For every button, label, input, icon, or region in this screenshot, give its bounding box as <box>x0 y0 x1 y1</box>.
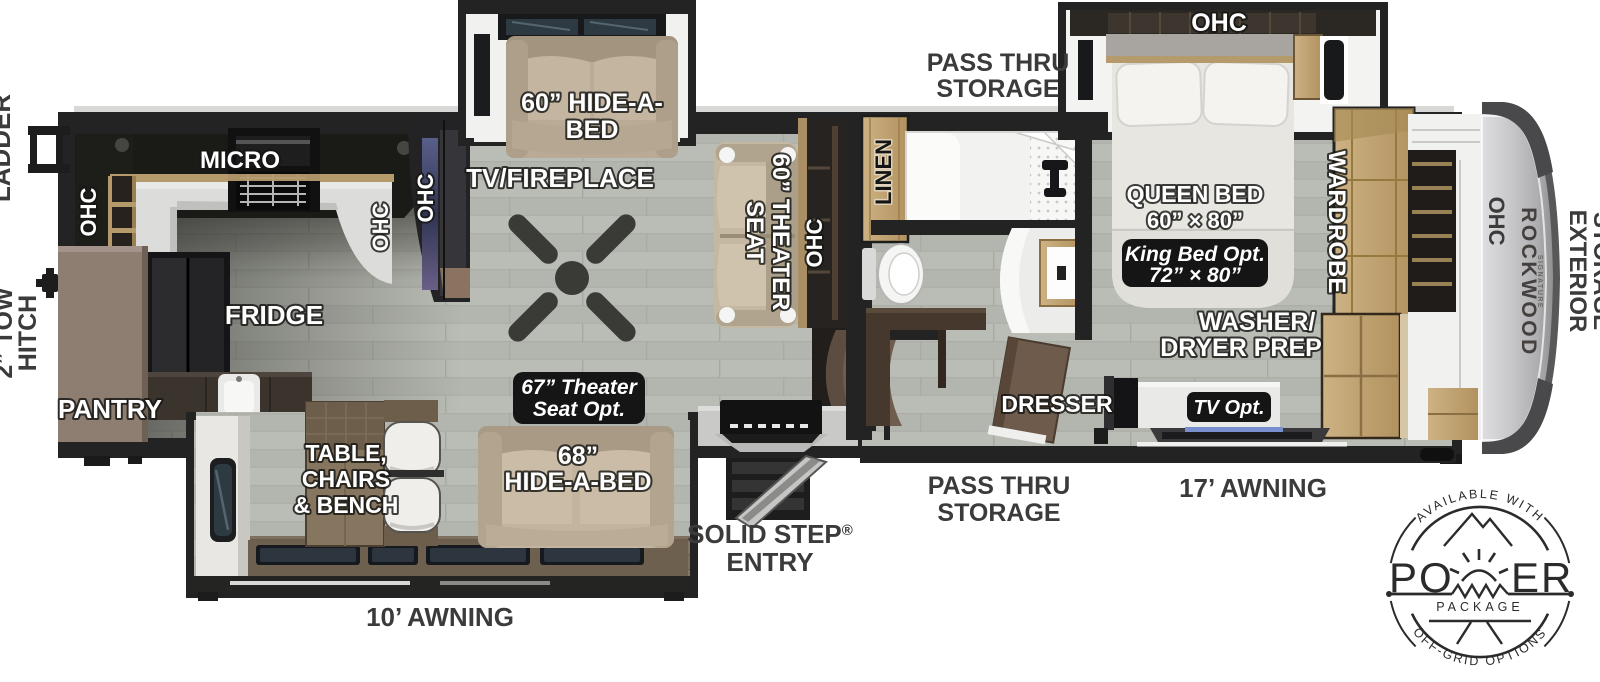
svg-text:& BENCH: & BENCH <box>294 492 399 518</box>
svg-text:60” THEATER: 60” THEATER <box>767 154 794 311</box>
svg-text:TV Opt.: TV Opt. <box>1193 397 1264 419</box>
svg-text:ENTRY: ENTRY <box>726 547 813 577</box>
svg-text:DRESSER: DRESSER <box>1001 391 1113 417</box>
svg-text:68”: 68” <box>558 442 598 470</box>
svg-text:17’ AWNING: 17’ AWNING <box>1179 473 1327 503</box>
svg-text:PASS THRU: PASS THRU <box>928 472 1071 500</box>
svg-text:CHAIRS: CHAIRS <box>302 466 390 492</box>
svg-text:10’ AWNING: 10’ AWNING <box>366 602 514 632</box>
svg-text:PO: PO <box>1389 554 1454 601</box>
svg-text:TABLE,: TABLE, <box>305 440 386 466</box>
svg-text:EXTERIOR: EXTERIOR <box>1564 210 1591 333</box>
svg-text:72” × 80”: 72” × 80” <box>1149 264 1241 287</box>
svg-text:TV/FIREPLACE: TV/FIREPLACE <box>466 163 654 193</box>
svg-text:FRIDGE: FRIDGE <box>225 300 323 330</box>
svg-text:60” × 80”: 60” × 80” <box>1147 208 1243 233</box>
svg-text:QUEEN BED: QUEEN BED <box>1127 181 1264 207</box>
svg-text:LADDER: LADDER <box>0 94 16 203</box>
svg-text:King Bed Opt.: King Bed Opt. <box>1125 243 1265 266</box>
svg-text:SIGNATURE: SIGNATURE <box>1536 255 1543 309</box>
svg-text:OHC: OHC <box>1191 9 1247 37</box>
svg-text:MICRO: MICRO <box>200 147 280 174</box>
svg-text:STORAGE: STORAGE <box>936 75 1059 103</box>
svg-text:PASS THRU: PASS THRU <box>927 49 1070 77</box>
svg-text:OHC: OHC <box>76 187 101 236</box>
svg-text:OHC: OHC <box>368 202 393 251</box>
svg-text:Seat Opt.: Seat Opt. <box>533 398 625 421</box>
svg-text:PANTRY: PANTRY <box>58 394 162 424</box>
svg-text:STORAGE: STORAGE <box>937 499 1060 527</box>
svg-text:LINEN: LINEN <box>871 139 896 205</box>
svg-text:WASHER/: WASHER/ <box>1199 308 1316 336</box>
svg-text:DRYER PREP: DRYER PREP <box>1160 334 1322 362</box>
svg-text:ER: ER <box>1511 554 1573 601</box>
svg-text:HIDE-A-BED: HIDE-A-BED <box>504 468 651 496</box>
svg-text:OHC: OHC <box>802 218 827 267</box>
svg-text:SEAT: SEAT <box>741 201 768 264</box>
svg-text:67” Theater: 67” Theater <box>521 376 638 399</box>
svg-text:OHC: OHC <box>413 173 438 222</box>
svg-text:PACKAGE: PACKAGE <box>1436 600 1524 614</box>
svg-text:60” HIDE-A-: 60” HIDE-A- <box>521 89 663 117</box>
svg-text:SOLID STEP®: SOLID STEP® <box>687 519 853 549</box>
svg-text:OHC: OHC <box>1484 197 1509 246</box>
svg-text:HITCH: HITCH <box>14 295 42 371</box>
svg-text:BED: BED <box>566 116 619 144</box>
svg-text:STORAGE: STORAGE <box>1588 212 1600 330</box>
svg-text:WARDROBE: WARDROBE <box>1323 151 1350 294</box>
